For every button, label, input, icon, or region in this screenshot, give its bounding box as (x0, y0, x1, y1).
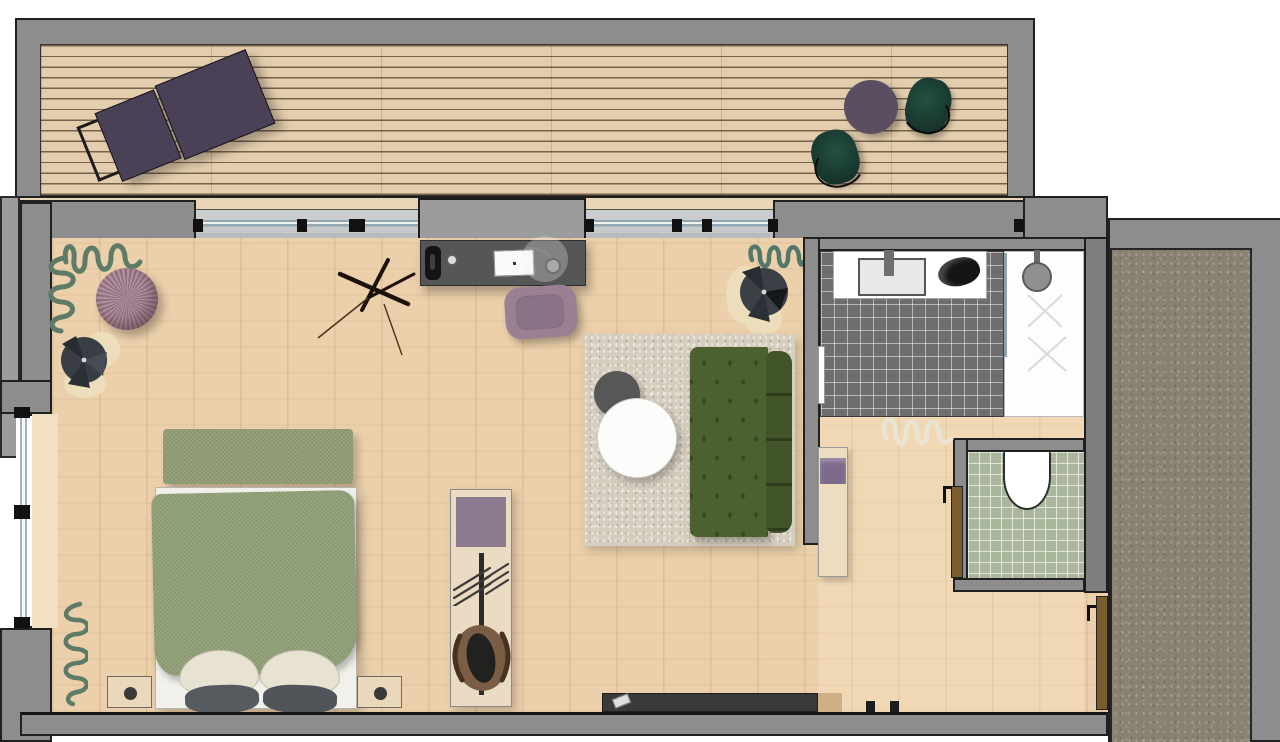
speaker-detail (430, 254, 435, 270)
left-window-glass (16, 414, 32, 628)
bathroom-right-wall (1084, 237, 1108, 593)
plant-hallway (880, 408, 962, 448)
bed-foot-bench (163, 429, 353, 484)
wc-bottom-wall (953, 578, 1085, 592)
wardrobe-cushion (456, 497, 506, 547)
sliding-door-panel-right (773, 200, 1025, 240)
sofa-backrest (766, 351, 792, 533)
tripod-floor-lamp (310, 252, 420, 357)
speaker-box (866, 701, 875, 712)
nightstand-knob (124, 687, 137, 700)
desk-speaker (425, 246, 441, 280)
entry-door (1096, 596, 1108, 710)
wc-door (951, 486, 963, 578)
shower-glass (1004, 253, 1007, 357)
wall-segment-right-end (1023, 196, 1108, 242)
vanity-faucet (884, 250, 894, 276)
sideboard-shadow (818, 693, 842, 712)
entry-door-handle (1087, 605, 1090, 621)
wardrobe-hooks (452, 556, 510, 606)
pouf (96, 268, 158, 330)
tv-sideboard (602, 693, 818, 712)
coffee-table-white (597, 398, 677, 478)
desk-chair (503, 284, 578, 341)
wc-top-wall (953, 438, 1085, 452)
armchair-right (736, 264, 790, 324)
speaker-box (890, 701, 899, 712)
sliding-door-panel-mid (418, 198, 586, 240)
corridor-carpet (1110, 248, 1252, 742)
nightstand-knob (374, 687, 387, 700)
bathroom-top-wall (805, 237, 1108, 251)
left-window-sill (32, 414, 58, 628)
desk-lamp-head (545, 258, 561, 274)
desk-chair-seat (515, 293, 565, 330)
plant-top-right (746, 232, 804, 268)
desk-cup (447, 255, 457, 265)
window-mullion (349, 219, 365, 232)
window-mullion (702, 219, 712, 232)
laptop-logo (513, 262, 516, 265)
shower-drain-marks (1022, 293, 1072, 373)
travel-bag (450, 620, 512, 696)
bench-towel (820, 458, 846, 484)
bottom-wall (20, 712, 1108, 736)
floor-plan (0, 0, 1280, 742)
window-mullion (768, 219, 778, 232)
bed-duvet (151, 490, 358, 676)
shower-head (1022, 262, 1052, 292)
plant-bottom-left (56, 600, 88, 706)
nightstand-left (107, 676, 152, 708)
bed-pillow-dark (263, 684, 338, 715)
bathroom-door-leaf (818, 346, 825, 404)
wc-door-handle (943, 486, 946, 503)
window-mullion (193, 219, 203, 232)
window-mullion (14, 407, 30, 418)
window-mullion (672, 219, 682, 232)
nightstand-right (357, 676, 402, 708)
sofa-seat (690, 347, 768, 537)
window-mullion (1014, 219, 1024, 232)
window-mullion (14, 505, 30, 519)
window-mullion (297, 219, 307, 232)
window-mullion (584, 219, 594, 232)
armchair-left (58, 334, 112, 392)
